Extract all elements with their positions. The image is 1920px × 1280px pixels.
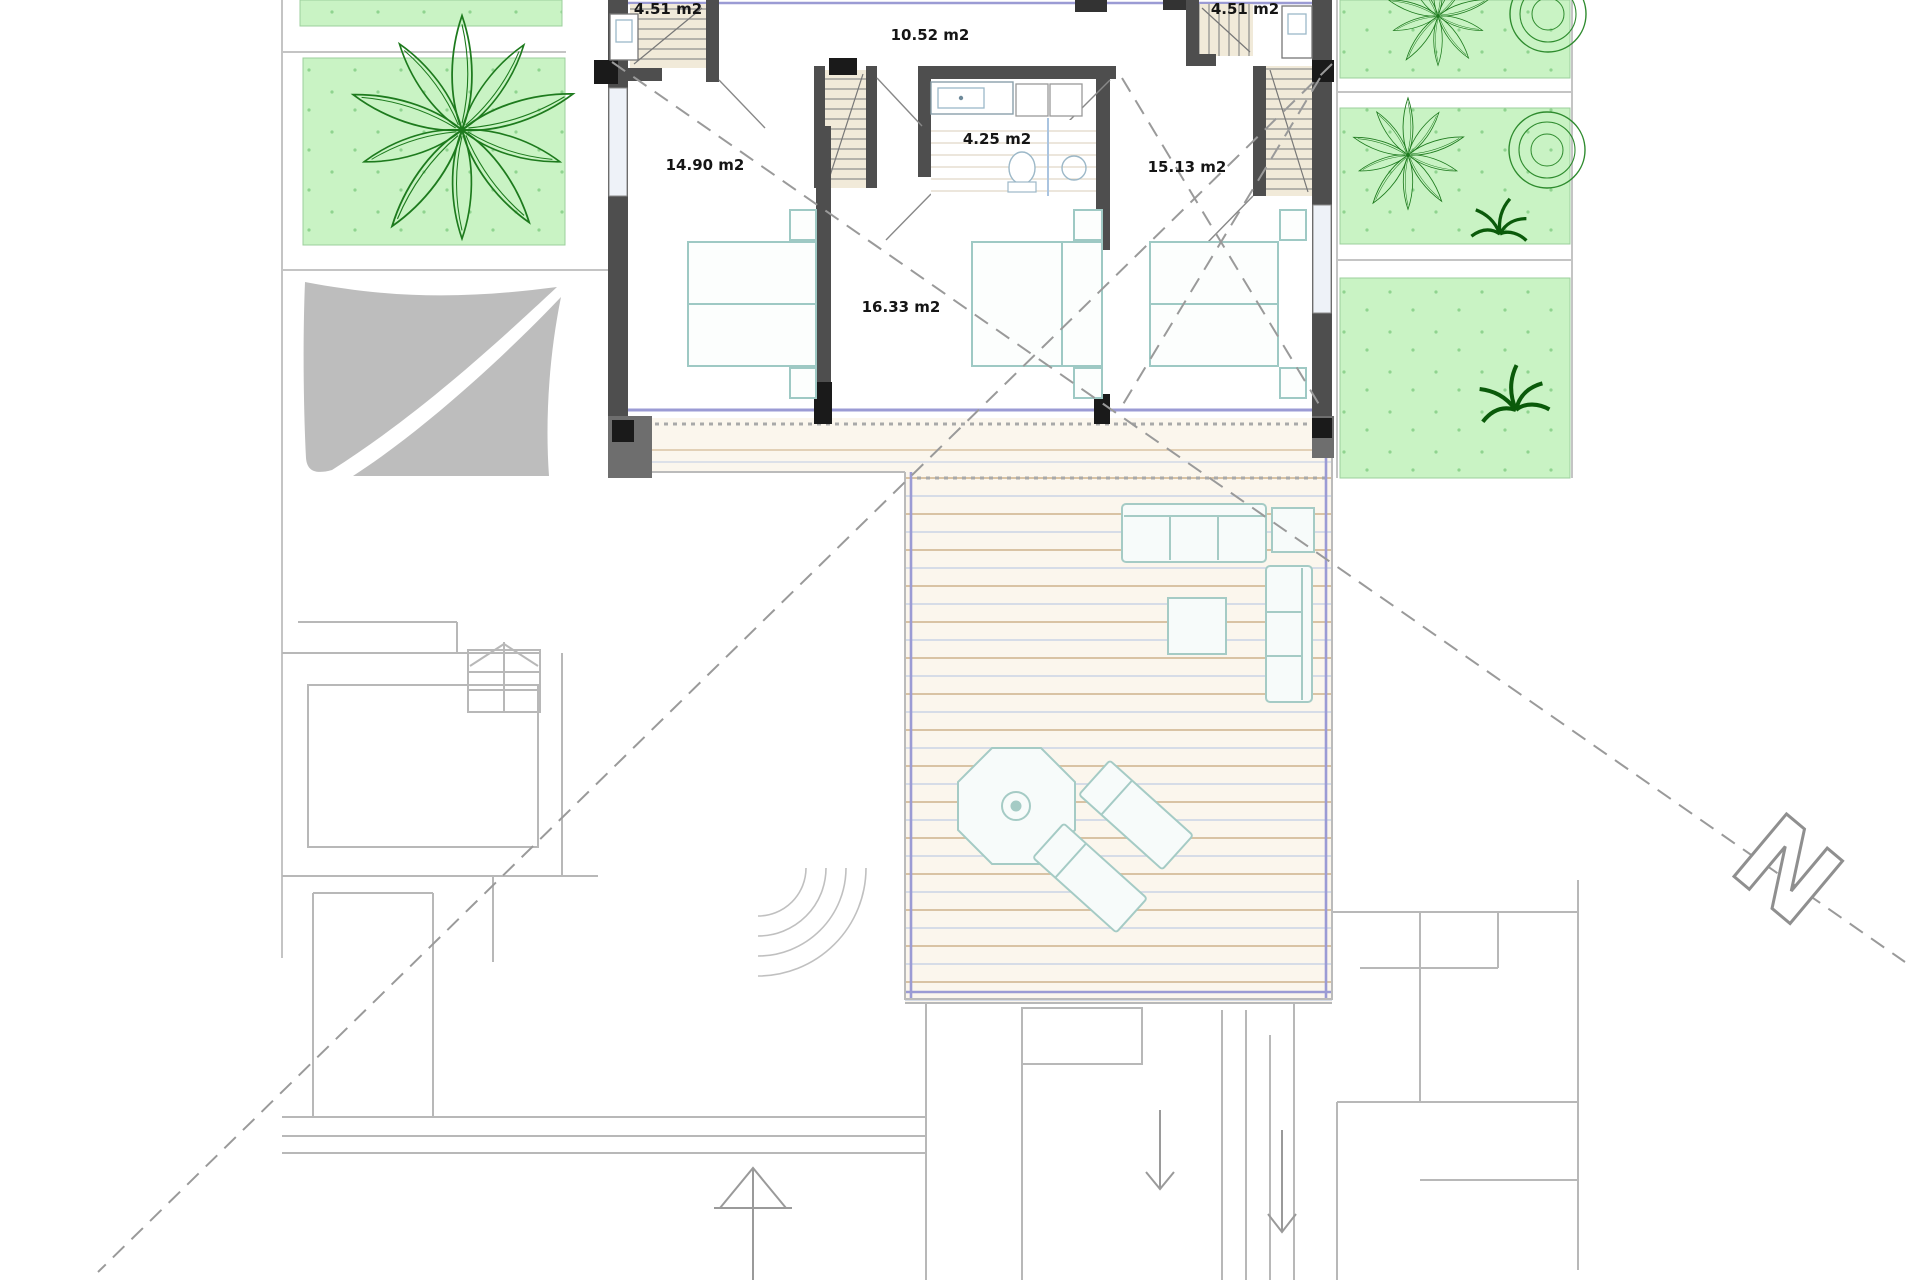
floor-plan-drawing: N 4.51 m2 10.52 m2 4.51 m2 14.90 m2 4.25… — [0, 0, 1920, 1280]
room-label-stair-left: 4.51 m2 — [634, 0, 702, 18]
beds — [688, 210, 1306, 398]
garden-right-bottom — [1340, 278, 1570, 478]
window-left — [609, 88, 627, 196]
nightstand — [1280, 210, 1306, 240]
nightstand — [1280, 368, 1306, 398]
window-right — [1313, 205, 1331, 313]
floor-plan-page: N 4.51 m2 10.52 m2 4.51 m2 14.90 m2 4.25… — [0, 0, 1920, 1280]
bathroom-counter — [931, 82, 1013, 114]
room-label-bedroom-left: 14.90 m2 — [666, 156, 745, 174]
garden-left-main — [303, 58, 565, 245]
nightstand — [790, 210, 816, 240]
outdoor-sofa — [1122, 504, 1266, 562]
nightstand — [1074, 210, 1102, 240]
room-label-bedroom-right: 15.13 m2 — [1148, 158, 1227, 176]
deck-terrace — [628, 418, 1332, 1002]
nightstand — [790, 368, 816, 398]
washer — [1016, 84, 1048, 116]
walls — [608, 0, 1334, 478]
room-label-landing: 10.52 m2 — [891, 26, 970, 44]
arc-steps — [758, 868, 866, 976]
room-label-hall: 16.33 m2 — [862, 298, 941, 316]
north-arrow: N — [1709, 791, 1864, 951]
bed-left — [688, 210, 816, 398]
washer — [1050, 84, 1082, 116]
coffee-table — [1168, 598, 1226, 654]
room-label-bathroom: 4.25 m2 — [963, 130, 1031, 148]
shade-sail — [304, 282, 561, 476]
toilet — [1009, 152, 1035, 184]
balcony-strip — [628, 418, 1332, 472]
hall-wall — [816, 126, 831, 412]
bed-middle — [972, 210, 1102, 398]
bed-right — [1150, 210, 1306, 398]
bathroom-wall-top — [918, 66, 1116, 79]
room-label-stair-right: 4.51 m2 — [1211, 0, 1279, 18]
north-label: N — [1709, 791, 1864, 951]
outdoor-sofa-corner — [1266, 566, 1312, 702]
garden-left-strip — [300, 0, 562, 26]
